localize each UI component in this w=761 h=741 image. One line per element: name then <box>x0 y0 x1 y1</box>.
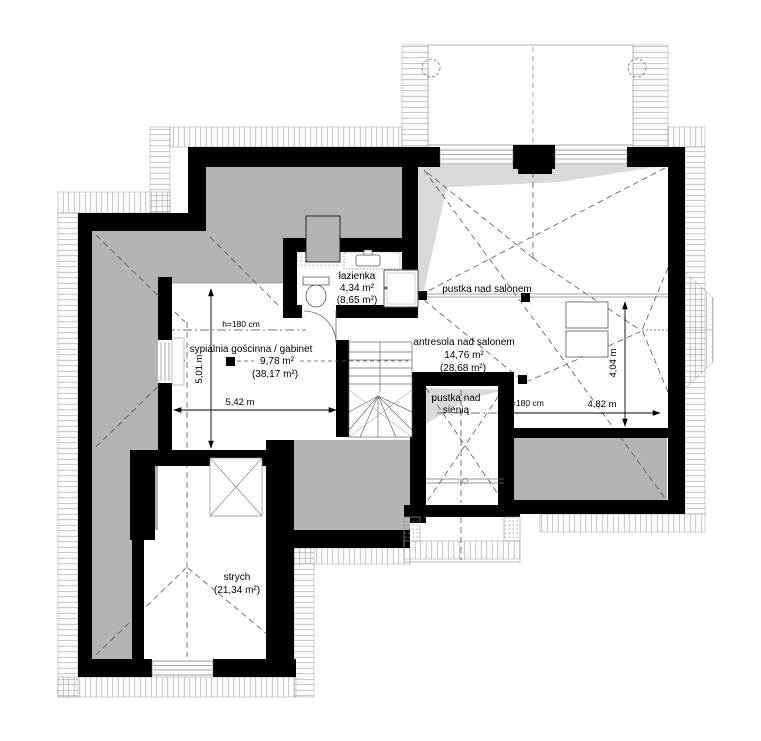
mezzanine-furniture <box>566 302 608 357</box>
dim-4-04: 4,04 m <box>608 348 619 377</box>
svg-text:(38,17 m²): (38,17 m²) <box>252 369 298 380</box>
svg-text:pustka nad salonem: pustka nad salonem <box>442 284 532 295</box>
shower <box>384 270 418 307</box>
label-void-living: pustka nad salonem <box>442 284 532 295</box>
svg-text:14,76 m²: 14,76 m² <box>444 350 484 361</box>
label-bedroom: sypialnia gościnna / gabinet 9,78 m² (38… <box>190 344 313 380</box>
dim-5-01: 5,01 m <box>194 354 205 383</box>
pier-right <box>504 517 520 541</box>
svg-text:sypialnia gościnna / gabinet: sypialnia gościnna / gabinet <box>190 344 313 355</box>
staircase <box>349 342 412 437</box>
svg-text:sienią: sienią <box>443 405 470 416</box>
top-window-left <box>440 150 513 164</box>
dim-5-42: 5,42 m <box>225 397 254 408</box>
dim-4-82: 4,82 m <box>587 399 616 410</box>
bedroom-niche-window <box>158 338 184 385</box>
svg-text:(8,65 m²): (8,65 m²) <box>337 295 378 306</box>
pier-left <box>404 517 420 541</box>
label-attic: strych (21,34 m²) <box>214 572 260 596</box>
svg-text:pustka nad: pustka nad <box>432 393 481 404</box>
svg-text:antresola nad salonem: antresola nad salonem <box>413 337 514 348</box>
height-180-right: h=180 cm <box>506 398 544 408</box>
label-mezzanine: antresola nad salonem 14,76 m² (28,68 m²… <box>413 337 514 374</box>
svg-text:(21,34 m²): (21,34 m²) <box>214 585 260 596</box>
bathroom-door <box>304 311 336 343</box>
washbasin <box>356 255 380 266</box>
toilet-tank <box>303 277 329 285</box>
height-180-left: h=180 cm <box>222 319 260 329</box>
floor-plan: 5,01 m 5,42 m 4,82 m 4,04 m h=180 cm h=1… <box>0 0 761 741</box>
toilet-bowl <box>306 285 326 307</box>
attic-window <box>152 661 213 675</box>
svg-text:9,78 m²: 9,78 m² <box>260 356 295 367</box>
svg-text:strych: strych <box>224 572 251 583</box>
svg-text:(28,68 m²): (28,68 m²) <box>440 363 486 374</box>
label-bathroom: łazienka 4,34 m² (8,65 m²) <box>337 271 378 306</box>
top-dormer <box>422 45 646 145</box>
svg-text:łazienka: łazienka <box>339 271 376 282</box>
attic-opening-marker <box>210 458 262 516</box>
floor-plan-svg: 5,01 m 5,42 m 4,82 m 4,04 m h=180 cm h=1… <box>0 0 761 741</box>
svg-text:4,34 m²: 4,34 m² <box>340 283 375 294</box>
top-window-right <box>555 150 627 164</box>
chimney-block <box>306 216 340 262</box>
